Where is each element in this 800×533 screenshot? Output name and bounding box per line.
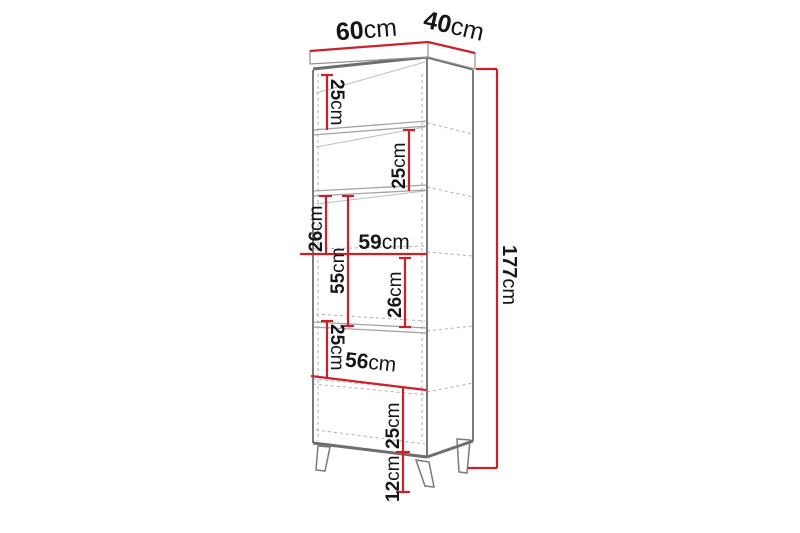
dim-label-top-width: 60cm <box>335 14 398 47</box>
front-left-leg <box>316 446 330 471</box>
dim-label-total-height: 177cm <box>498 245 520 305</box>
dim-label-inner-width-low: 56cm <box>344 348 397 376</box>
dim-label-door-height: 55cm <box>328 248 349 294</box>
dim-label-shelf2: 25cm <box>389 143 410 189</box>
dim-label-inner-width-mid: 59cm <box>358 231 409 254</box>
dimension-diagram: 60cm 40cm 25cm 25cm 26cm 55cm 59cm 26cm … <box>0 0 800 533</box>
dim-label-mid-upper: 26cm <box>306 206 327 252</box>
dim-label-shelf1: 25cm <box>326 79 347 125</box>
front-right-leg <box>416 460 434 487</box>
dim-label-leg-height: 12cm <box>383 456 404 502</box>
top-slab <box>310 42 475 69</box>
dim-label-mid-lower: 26cm <box>385 272 406 318</box>
cabinet-diagram-svg: 60cm 40cm 25cm 25cm 26cm 55cm 59cm 26cm … <box>0 0 800 533</box>
dim-line-inner-width-low <box>311 376 426 390</box>
dim-label-top-depth: 40cm <box>421 6 487 47</box>
dim-label-lower-lower: 25cm <box>383 403 404 449</box>
